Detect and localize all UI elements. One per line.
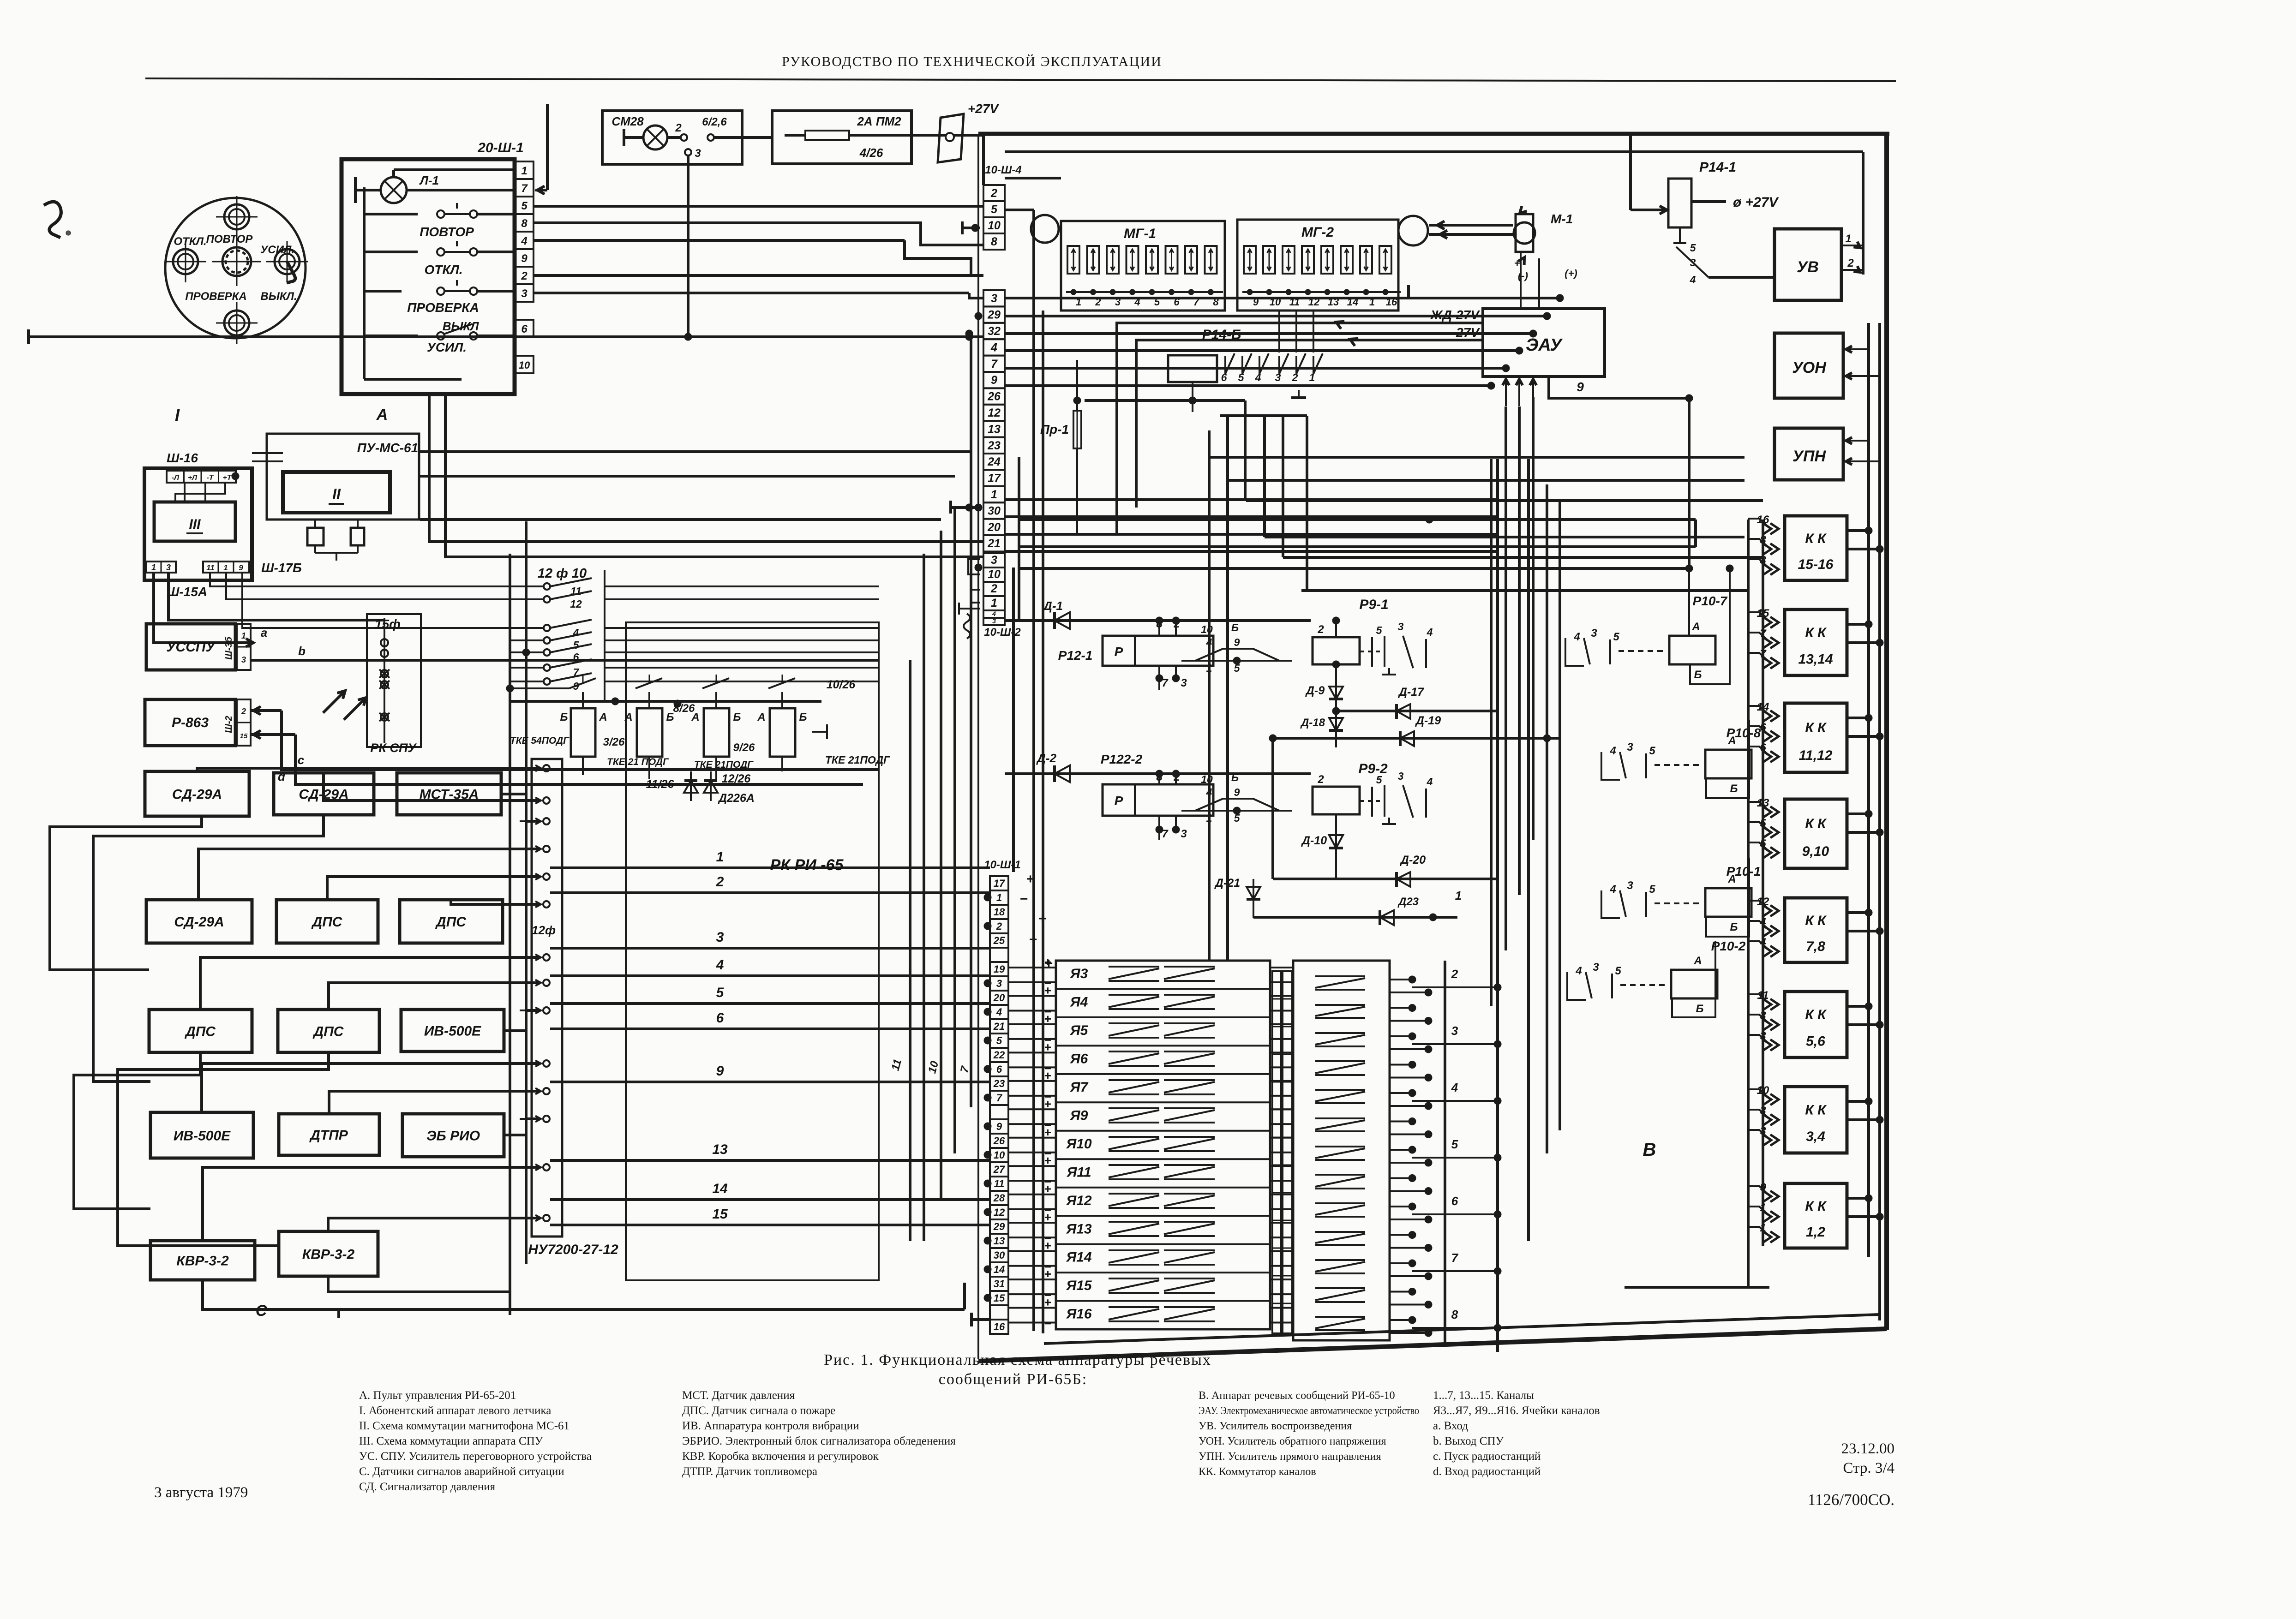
svg-text:3: 3	[1181, 677, 1187, 689]
svg-text:11/26: 11/26	[646, 778, 675, 791]
svg-text:10/26: 10/26	[827, 678, 856, 691]
svg-text:30: 30	[988, 504, 1001, 517]
svg-text:4: 4	[1427, 776, 1433, 788]
svg-text:5,6: 5,6	[1806, 1034, 1825, 1049]
svg-text:Д226А: Д226А	[718, 792, 755, 805]
svg-text:СМ28: СМ28	[611, 114, 644, 128]
svg-text:Ш-3б: Ш-3б	[224, 637, 234, 660]
svg-text:12: 12	[988, 406, 1001, 419]
svg-text:+: +	[1044, 1267, 1051, 1281]
svg-text:11: 11	[889, 1058, 904, 1072]
svg-text:3: 3	[521, 287, 528, 300]
svg-text:5: 5	[1613, 631, 1619, 643]
svg-text:2: 2	[1292, 371, 1298, 383]
svg-text:УСИЛ.: УСИЛ.	[260, 244, 294, 256]
svg-text:4: 4	[1573, 631, 1580, 643]
svg-text:13,14: 13,14	[1798, 651, 1833, 667]
svg-text:Р9-1: Р9-1	[1359, 597, 1388, 612]
svg-text:Я9: Я9	[1070, 1108, 1088, 1123]
svg-text:А: А	[1693, 955, 1702, 967]
svg-text:Д-9: Д-9	[1305, 684, 1325, 697]
svg-text:Я3: Я3	[1070, 966, 1088, 981]
svg-text:ø +27V: ø +27V	[1733, 195, 1780, 210]
svg-text:+: +	[1044, 955, 1051, 969]
svg-text:Р12-1: Р12-1	[1058, 648, 1093, 663]
svg-text:2: 2	[1317, 623, 1324, 636]
svg-text:А. Пульт управления РИ-65-201: А. Пульт управления РИ-65-201	[359, 1389, 516, 1402]
svg-text:ЭАУ: ЭАУ	[1526, 335, 1563, 355]
svg-text:3: 3	[241, 655, 246, 664]
svg-text:+: +	[1044, 1012, 1051, 1026]
svg-text:МСТ. Датчик давления: МСТ. Датчик давления	[682, 1389, 795, 1402]
svg-text:Б: Б	[1694, 669, 1702, 681]
svg-text:9: 9	[991, 374, 997, 387]
svg-text:6: 6	[716, 1010, 724, 1026]
svg-text:I. Абонентский аппарат левого: I. Абонентский аппарат левого летчика	[359, 1404, 551, 1417]
svg-text:МГ-1: МГ-1	[1124, 226, 1156, 241]
svg-text:Ш-15А: Ш-15А	[167, 585, 207, 599]
svg-text:4: 4	[1609, 745, 1616, 757]
svg-text:Д-1: Д-1	[1043, 599, 1063, 613]
svg-text:6: 6	[1221, 371, 1227, 383]
svg-text:7: 7	[991, 358, 998, 370]
svg-text:1: 1	[1309, 371, 1315, 383]
svg-text:30: 30	[994, 1249, 1005, 1261]
svg-text:Д-2: Д-2	[1036, 751, 1056, 765]
svg-text:2: 2	[521, 270, 528, 282]
svg-text:УСИЛ.: УСИЛ.	[427, 340, 467, 354]
svg-text:КВР-3-2: КВР-3-2	[176, 1253, 229, 1268]
svg-text:-Л: -Л	[172, 474, 180, 482]
svg-text:1: 1	[1455, 889, 1462, 902]
svg-text:Ш-16: Ш-16	[167, 451, 198, 465]
svg-text:Р122-2: Р122-2	[1101, 752, 1143, 766]
svg-text:4: 4	[521, 235, 527, 247]
svg-text:ЭАУ. Электромеханическое автом: ЭАУ. Электромеханическое автоматическое …	[1199, 1405, 1419, 1417]
svg-text:УВ. Усилитель воспроизведения: УВ. Усилитель воспроизведения	[1199, 1420, 1352, 1432]
svg-text:5: 5	[716, 985, 725, 1000]
svg-text:ДПС: ДПС	[184, 1024, 216, 1039]
svg-text:ПРОВЕРКА: ПРОВЕРКА	[185, 290, 246, 303]
svg-text:19: 19	[994, 963, 1005, 975]
svg-text:20: 20	[993, 992, 1005, 1004]
svg-text:1...7, 13...15. Каналы: 1...7, 13...15. Каналы	[1433, 1389, 1534, 1402]
svg-text:К К: К К	[1805, 913, 1827, 928]
svg-text:+: +	[1044, 1239, 1051, 1253]
svg-text:2: 2	[1847, 257, 1854, 269]
svg-text:В: В	[1643, 1140, 1656, 1160]
svg-text:III. Схема коммутации аппарата: III. Схема коммутации аппарата СПУ	[359, 1435, 543, 1447]
svg-text:ПУ-МС-61: ПУ-МС-61	[357, 441, 418, 455]
svg-text:9: 9	[996, 1121, 1002, 1132]
svg-text:1126/700СО.: 1126/700СО.	[1808, 1491, 1894, 1509]
svg-text:Я4: Я4	[1070, 995, 1088, 1010]
svg-text:+: +	[1044, 1125, 1051, 1139]
svg-text:1: 1	[716, 849, 724, 865]
svg-text:31: 31	[994, 1278, 1005, 1290]
svg-text:24: 24	[987, 455, 1001, 468]
svg-text:Ш-2: Ш-2	[224, 716, 234, 733]
svg-text:4: 4	[573, 627, 579, 639]
svg-text:4/26: 4/26	[859, 146, 883, 160]
svg-text:4: 4	[1690, 274, 1696, 286]
svg-text:c. Пуск радиостанций: c. Пуск радиостанций	[1433, 1450, 1541, 1463]
svg-text:27: 27	[993, 1164, 1006, 1175]
svg-text:2: 2	[996, 920, 1002, 932]
svg-text:3: 3	[1451, 1024, 1458, 1038]
svg-text:4: 4	[1609, 883, 1616, 896]
svg-text:ДПС. Датчик сигнала о пожаре: ДПС. Датчик сигнала о пожаре	[682, 1404, 835, 1417]
svg-text:3 августа 1979: 3 августа 1979	[154, 1484, 248, 1501]
svg-text:14: 14	[712, 1181, 728, 1196]
svg-text:4: 4	[716, 957, 724, 973]
svg-text:+: +	[1044, 1040, 1051, 1054]
svg-text:(-): (-)	[1518, 270, 1528, 281]
svg-text:15ф: 15ф	[375, 617, 401, 631]
svg-text:3: 3	[1627, 879, 1633, 892]
svg-text:32: 32	[988, 325, 1001, 338]
svg-text:Я11: Я11	[1066, 1165, 1091, 1180]
svg-text:УОН: УОН	[1792, 359, 1827, 376]
svg-text:1: 1	[996, 892, 1002, 903]
svg-text:ДПС: ДПС	[312, 1024, 344, 1039]
svg-text:−: −	[1044, 1317, 1051, 1331]
svg-text:Д-10: Д-10	[1301, 834, 1327, 847]
svg-text:М-1: М-1	[1551, 212, 1573, 226]
svg-text:3: 3	[991, 292, 997, 305]
svg-text:ВЫКЛ.: ВЫКЛ.	[260, 290, 297, 303]
svg-text:Р14-1: Р14-1	[1699, 160, 1736, 175]
svg-text:К К: К К	[1805, 1007, 1827, 1022]
svg-text:Д23: Д23	[1397, 896, 1419, 908]
svg-text:3: 3	[996, 978, 1002, 989]
svg-text:НУ7200-27-12: НУ7200-27-12	[528, 1242, 618, 1257]
svg-text:1: 1	[241, 631, 246, 640]
svg-text:9/26: 9/26	[733, 741, 755, 754]
svg-text:А: А	[376, 406, 388, 424]
svg-text:Б: Б	[560, 711, 568, 723]
svg-text:17: 17	[988, 472, 1001, 485]
svg-text:18: 18	[994, 906, 1005, 918]
svg-text:К К: К К	[1805, 531, 1827, 546]
svg-text:5: 5	[573, 639, 580, 651]
svg-text:1,2: 1,2	[1806, 1225, 1825, 1240]
svg-text:12: 12	[994, 1207, 1005, 1218]
svg-text:2А ПМ2: 2А ПМ2	[857, 114, 901, 128]
svg-text:2: 2	[990, 187, 997, 200]
svg-text:23: 23	[993, 1078, 1005, 1089]
svg-text:12 ф 10: 12 ф 10	[538, 566, 587, 581]
svg-text:25: 25	[993, 935, 1005, 946]
svg-text:Ш-17Б: Ш-17Б	[261, 561, 302, 575]
svg-text:9: 9	[1234, 636, 1240, 648]
svg-text:3: 3	[716, 930, 724, 945]
svg-text:СД. Сигнализатор давления: СД. Сигнализатор давления	[359, 1481, 496, 1493]
svg-text:Д-19: Д-19	[1415, 714, 1441, 727]
svg-text:Р10-8: Р10-8	[1726, 726, 1761, 740]
svg-text:b. Выход СПУ: b. Выход СПУ	[1433, 1435, 1504, 1447]
svg-text:10: 10	[994, 1149, 1005, 1161]
svg-text:Д-18: Д-18	[1300, 717, 1325, 729]
svg-text:Б: Б	[1696, 1003, 1704, 1015]
svg-text:3: 3	[992, 617, 996, 625]
svg-text:1: 1	[1845, 233, 1851, 245]
svg-text:II: II	[332, 486, 341, 502]
svg-text:1: 1	[521, 165, 527, 177]
svg-text:3: 3	[991, 554, 997, 567]
svg-text:26: 26	[987, 390, 1001, 403]
svg-text:Р9-2: Р9-2	[1358, 761, 1388, 777]
svg-text:А: А	[757, 711, 765, 723]
svg-text:Я14: Я14	[1066, 1250, 1092, 1265]
svg-text:5: 5	[1690, 242, 1697, 254]
svg-text:+Т: +Т	[222, 474, 232, 482]
svg-text:c: c	[298, 753, 305, 767]
svg-text:Стр. 3/4: Стр. 3/4	[1843, 1460, 1894, 1476]
svg-text:+: +	[1044, 1153, 1051, 1167]
svg-text:ТКЕ 54ПОДГ: ТКЕ 54ПОДГ	[510, 735, 570, 746]
svg-text:В. Аппарат речевых сообщений Р: В. Аппарат речевых сообщений РИ-65-10	[1199, 1390, 1395, 1402]
svg-text:a. Вход: a. Вход	[1433, 1420, 1468, 1432]
svg-text:10: 10	[519, 359, 530, 371]
svg-text:3/26: 3/26	[603, 736, 625, 748]
svg-text:РК СПУ: РК СПУ	[370, 741, 417, 755]
svg-text:22: 22	[993, 1049, 1005, 1061]
svg-text:ИВ-500Е: ИВ-500Е	[174, 1128, 231, 1143]
svg-text:5: 5	[521, 200, 528, 212]
svg-text:ОТКЛ.: ОТКЛ.	[174, 235, 206, 248]
svg-text:Б: Б	[1730, 921, 1738, 933]
svg-text:III: III	[189, 517, 201, 532]
svg-text:4: 4	[992, 610, 996, 617]
svg-text:12: 12	[570, 598, 582, 610]
svg-text:13: 13	[988, 423, 1001, 436]
svg-text:7: 7	[1162, 828, 1169, 840]
svg-text:сообщений РИ-65Б:: сообщений РИ-65Б:	[939, 1371, 1088, 1388]
svg-text:А: А	[1691, 621, 1700, 633]
svg-text:b: b	[298, 644, 306, 658]
svg-text:6/2,6: 6/2,6	[702, 116, 727, 128]
svg-text:Я15: Я15	[1066, 1278, 1092, 1293]
svg-text:5: 5	[1238, 371, 1245, 383]
svg-text:+27V: +27V	[968, 102, 999, 116]
svg-text:29: 29	[993, 1221, 1005, 1232]
svg-text:ДПС: ДПС	[435, 914, 467, 930]
svg-text:Р: Р	[1115, 645, 1123, 659]
svg-text:20-Ш-1: 20-Ш-1	[477, 140, 523, 155]
svg-text:+: +	[1044, 1097, 1051, 1111]
svg-text:КК. Коммутатор каналов: КК. Коммутатор каналов	[1199, 1466, 1316, 1478]
svg-text:2: 2	[241, 707, 246, 716]
svg-text:15: 15	[240, 732, 248, 740]
svg-text:Б: Б	[1231, 621, 1239, 633]
svg-text:Д-17: Д-17	[1398, 686, 1424, 699]
svg-text:2: 2	[1317, 773, 1324, 786]
svg-text:11: 11	[206, 563, 215, 572]
svg-text:5: 5	[1615, 965, 1621, 977]
svg-text:4: 4	[1451, 1081, 1458, 1094]
svg-text:+: +	[1044, 1069, 1051, 1082]
svg-text:Рис. 1. Функциональная схема а: Рис. 1. Функциональная схема аппаратуры …	[824, 1351, 1211, 1368]
svg-text:3: 3	[1591, 627, 1597, 639]
svg-text:6: 6	[1451, 1194, 1458, 1208]
svg-text:15-16: 15-16	[1798, 557, 1834, 572]
svg-text:2: 2	[675, 122, 682, 134]
svg-text:21: 21	[987, 537, 1001, 550]
svg-text:3: 3	[1275, 371, 1281, 383]
svg-text:К К: К К	[1805, 1199, 1827, 1214]
svg-text:28: 28	[993, 1192, 1005, 1204]
svg-text:2: 2	[1451, 967, 1458, 981]
svg-text:5: 5	[1376, 774, 1383, 786]
svg-text:ТКЕ 21ПОДГ: ТКЕ 21ПОДГ	[825, 754, 890, 766]
svg-text:8: 8	[1451, 1308, 1458, 1321]
svg-text:+: +	[1044, 1210, 1051, 1224]
svg-text:7: 7	[1162, 677, 1169, 689]
svg-text:6: 6	[521, 323, 528, 335]
svg-text:ПРОВЕРКА: ПРОВЕРКА	[407, 300, 479, 315]
svg-text:2: 2	[716, 874, 724, 890]
svg-text:4: 4	[1575, 965, 1582, 977]
svg-text:ЭБ РИО: ЭБ РИО	[426, 1128, 480, 1143]
svg-text:5: 5	[1376, 624, 1383, 636]
svg-text:ПОВТОР: ПОВТОР	[420, 225, 474, 239]
svg-text:(+): (+)	[1565, 268, 1577, 279]
svg-text:СД-29А: СД-29А	[174, 914, 224, 930]
svg-text:УПН: УПН	[1792, 448, 1826, 465]
svg-text:СД-29А: СД-29А	[172, 787, 222, 802]
svg-text:ИВ-500Е: ИВ-500Е	[424, 1023, 481, 1039]
svg-text:9: 9	[239, 563, 243, 572]
svg-text:I: I	[175, 406, 180, 424]
svg-text:ЭБРИО. Электронный блок сигнал: ЭБРИО. Электронный блок сигнализатора об…	[682, 1435, 956, 1447]
svg-text:ОТКЛ.: ОТКЛ.	[424, 263, 462, 277]
svg-text:Пр-1: Пр-1	[1040, 422, 1069, 436]
svg-text:ДПС: ДПС	[311, 914, 343, 930]
svg-text:5: 5	[1649, 745, 1655, 757]
svg-text:8: 8	[991, 235, 997, 248]
svg-text:9: 9	[1234, 786, 1240, 798]
svg-text:Б: Б	[1231, 771, 1239, 783]
svg-text:23: 23	[987, 439, 1001, 452]
svg-text:10: 10	[1201, 773, 1213, 785]
svg-text:11: 11	[994, 1178, 1005, 1189]
svg-text:А: А	[691, 711, 699, 723]
svg-text:Б: Б	[799, 711, 807, 723]
svg-text:К К: К К	[1805, 816, 1827, 831]
svg-text:10-Ш-1: 10-Ш-1	[984, 859, 1021, 871]
svg-text:1: 1	[991, 597, 997, 609]
svg-text:Р: Р	[1115, 794, 1123, 808]
svg-text:УОН. Усилитель обратного напря: УОН. Усилитель обратного напряжения	[1199, 1435, 1386, 1447]
svg-text:Б: Б	[1730, 783, 1738, 795]
svg-text:3: 3	[1627, 741, 1633, 753]
svg-text:Р10-1: Р10-1	[1726, 864, 1761, 878]
svg-text:Б: Б	[733, 711, 741, 723]
svg-text:+: +	[1514, 257, 1520, 269]
svg-text:16: 16	[994, 1321, 1005, 1332]
svg-text:+: +	[1044, 1296, 1051, 1309]
svg-text:20: 20	[987, 521, 1001, 534]
svg-text:10-Ш-2: 10-Ш-2	[984, 626, 1021, 639]
svg-text:С. Датчики сигналов аварийной: С. Датчики сигналов аварийной ситуации	[359, 1465, 564, 1478]
svg-text:К К: К К	[1805, 1102, 1827, 1117]
svg-text:8: 8	[521, 217, 528, 230]
svg-text:12/26: 12/26	[722, 772, 751, 785]
svg-text:К К: К К	[1805, 625, 1827, 640]
svg-text:ДТПР. Датчик топливомера: ДТПР. Датчик топливомера	[682, 1465, 817, 1478]
svg-text:10: 10	[988, 219, 1001, 232]
svg-text:4: 4	[1255, 371, 1261, 383]
svg-text:26: 26	[993, 1135, 1005, 1147]
svg-text:3,4: 3,4	[1806, 1129, 1825, 1144]
svg-text:-Т: -Т	[206, 474, 214, 482]
svg-text:+Л: +Л	[188, 474, 198, 482]
svg-text:10: 10	[1201, 623, 1213, 635]
svg-text:Я6: Я6	[1070, 1051, 1088, 1066]
svg-text:3: 3	[695, 147, 701, 160]
svg-text:КВР-3-2: КВР-3-2	[302, 1247, 355, 1262]
svg-text:15: 15	[712, 1207, 728, 1222]
svg-text:10-Ш-4: 10-Ш-4	[985, 164, 1022, 176]
svg-text:ТКЕ 21 ПОДГ: ТКЕ 21 ПОДГ	[607, 757, 669, 767]
svg-text:МГ-2: МГ-2	[1301, 225, 1334, 240]
svg-text:17: 17	[994, 878, 1006, 889]
svg-text:5: 5	[996, 1035, 1002, 1046]
svg-text:12ф: 12ф	[532, 923, 556, 937]
svg-text:7: 7	[996, 1092, 1003, 1104]
svg-text:9: 9	[521, 252, 528, 265]
svg-text:7: 7	[1451, 1251, 1459, 1265]
svg-text:3: 3	[1398, 770, 1404, 782]
svg-text:9: 9	[1577, 380, 1584, 394]
svg-text:УС. СПУ. Усилитель переговорно: УС. СПУ. Усилитель переговорного устройс…	[359, 1450, 592, 1463]
svg-text:УВ: УВ	[1797, 258, 1819, 276]
svg-text:5: 5	[991, 203, 998, 216]
svg-text:29: 29	[987, 309, 1001, 322]
svg-text:3: 3	[1593, 961, 1599, 974]
svg-text:5: 5	[1649, 883, 1655, 896]
svg-text:3: 3	[1181, 828, 1187, 840]
svg-text:9,10: 9,10	[1802, 844, 1829, 859]
svg-text:Я10: Я10	[1066, 1136, 1092, 1152]
svg-text:13: 13	[712, 1142, 728, 1157]
svg-text:23.12.00: 23.12.00	[1841, 1440, 1895, 1457]
svg-text:УПН. Усилитель прямого направл: УПН. Усилитель прямого направления	[1199, 1451, 1381, 1463]
svg-text:3: 3	[166, 563, 171, 572]
svg-text:4: 4	[1427, 626, 1433, 638]
svg-text:1: 1	[223, 563, 228, 572]
svg-text:ВЫКЛ: ВЫКЛ	[443, 319, 480, 333]
svg-text:+: +	[1044, 983, 1051, 997]
svg-text:+: +	[1044, 1182, 1051, 1196]
svg-text:7: 7	[521, 182, 528, 195]
svg-text:4: 4	[990, 341, 997, 354]
svg-text:−: −	[1019, 891, 1028, 907]
svg-text:15: 15	[994, 1292, 1005, 1304]
svg-text:II. Схема коммутации магнитофо: II. Схема коммутации магнитофона МС-61	[359, 1420, 570, 1432]
svg-text:14: 14	[994, 1264, 1005, 1275]
svg-text:Я12: Я12	[1066, 1193, 1092, 1208]
svg-text:РУКОВОДСТВО ПО ТЕХНИЧЕСКОЙ ЭКС: РУКОВОДСТВО ПО ТЕХНИЧЕСКОЙ ЭКСПЛУАТАЦИИ	[782, 54, 1162, 69]
svg-text:ДТПР: ДТПР	[309, 1128, 348, 1143]
svg-text:9: 9	[716, 1063, 724, 1079]
svg-text:А: А	[599, 711, 607, 723]
svg-text:КВР. Коробка включения и регул: КВР. Коробка включения и регулировок	[682, 1450, 879, 1463]
svg-text:1: 1	[991, 488, 997, 501]
svg-text:УССПУ: УССПУ	[166, 639, 216, 655]
svg-text:Л-1: Л-1	[419, 173, 439, 187]
